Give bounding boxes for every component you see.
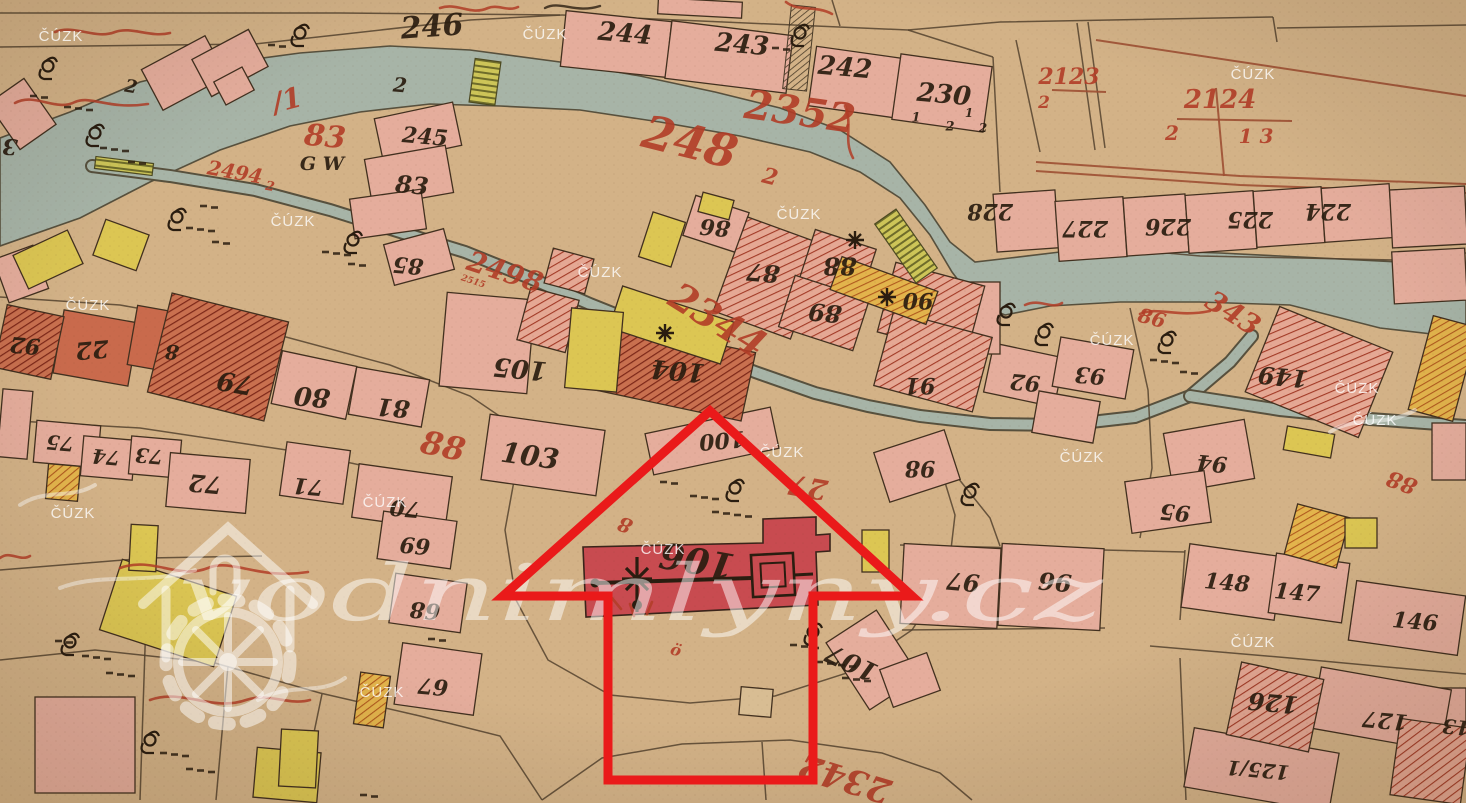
cuzk-watermark: ČÚZK	[641, 541, 686, 558]
logo-hub	[219, 653, 237, 671]
brand-watermark-text: vodnimlyny.cz	[178, 549, 1104, 639]
cuzk-watermark: ČÚZK	[1231, 66, 1276, 83]
cuzk-watermark: ČÚZK	[1090, 332, 1135, 349]
cuzk-watermark: ČÚZK	[1335, 380, 1380, 397]
cuzk-watermark: ČÚZK	[51, 505, 96, 522]
cuzk-watermark: ČÚZK	[1060, 449, 1105, 466]
cadastral-map-screenshot: 2462442432422301212228227226225224245G W…	[0, 0, 1466, 803]
paper-vignette	[0, 0, 1466, 803]
cuzk-watermark: ČÚZK	[523, 26, 568, 43]
cuzk-watermark: ČÚZK	[39, 28, 84, 45]
cuzk-watermark: ČÚZK	[578, 264, 623, 281]
cuzk-watermark: ČÚZK	[777, 206, 822, 223]
cuzk-watermark: ČÚZK	[271, 213, 316, 230]
cuzk-watermark: ČÚZK	[66, 297, 111, 314]
cuzk-watermark: ČÚZK	[360, 684, 405, 701]
cuzk-watermark: ČÚZK	[1231, 634, 1276, 651]
map-canvas: 2462442432422301212228227226225224245G W…	[0, 0, 1466, 803]
paper-texture	[0, 0, 1466, 803]
cuzk-watermark: ČÚZK	[1353, 412, 1398, 429]
cuzk-watermark: ČÚZK	[363, 494, 408, 511]
